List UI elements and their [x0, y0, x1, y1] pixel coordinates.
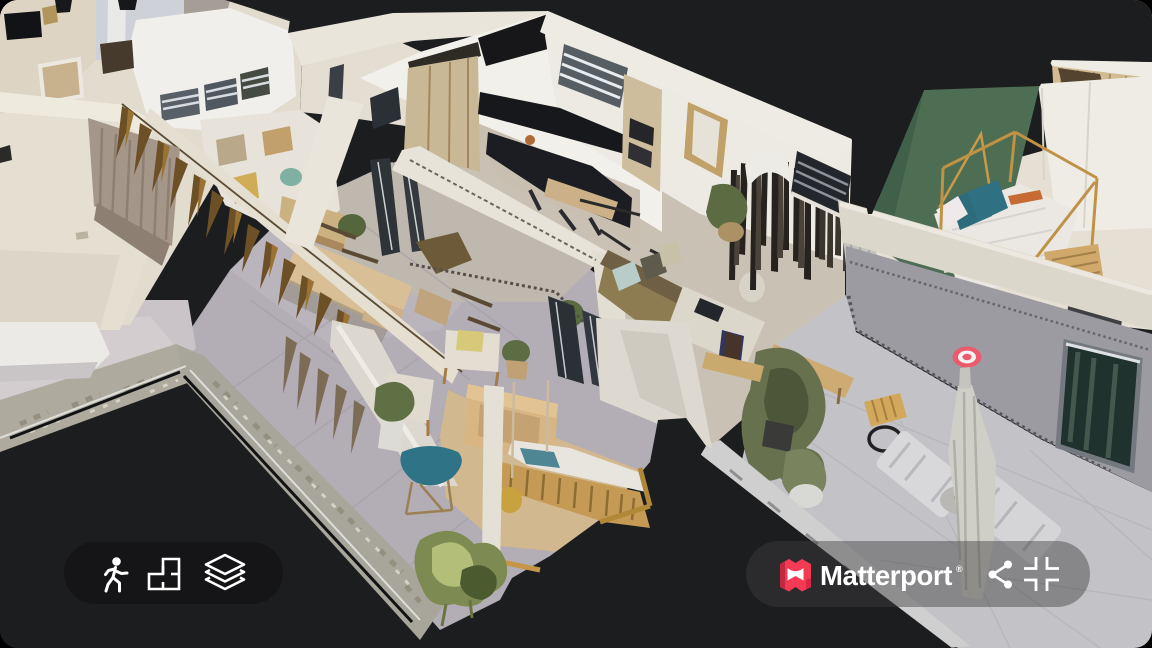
svg-text:®: ®	[956, 564, 963, 574]
svg-text:Matterport: Matterport	[820, 560, 952, 591]
